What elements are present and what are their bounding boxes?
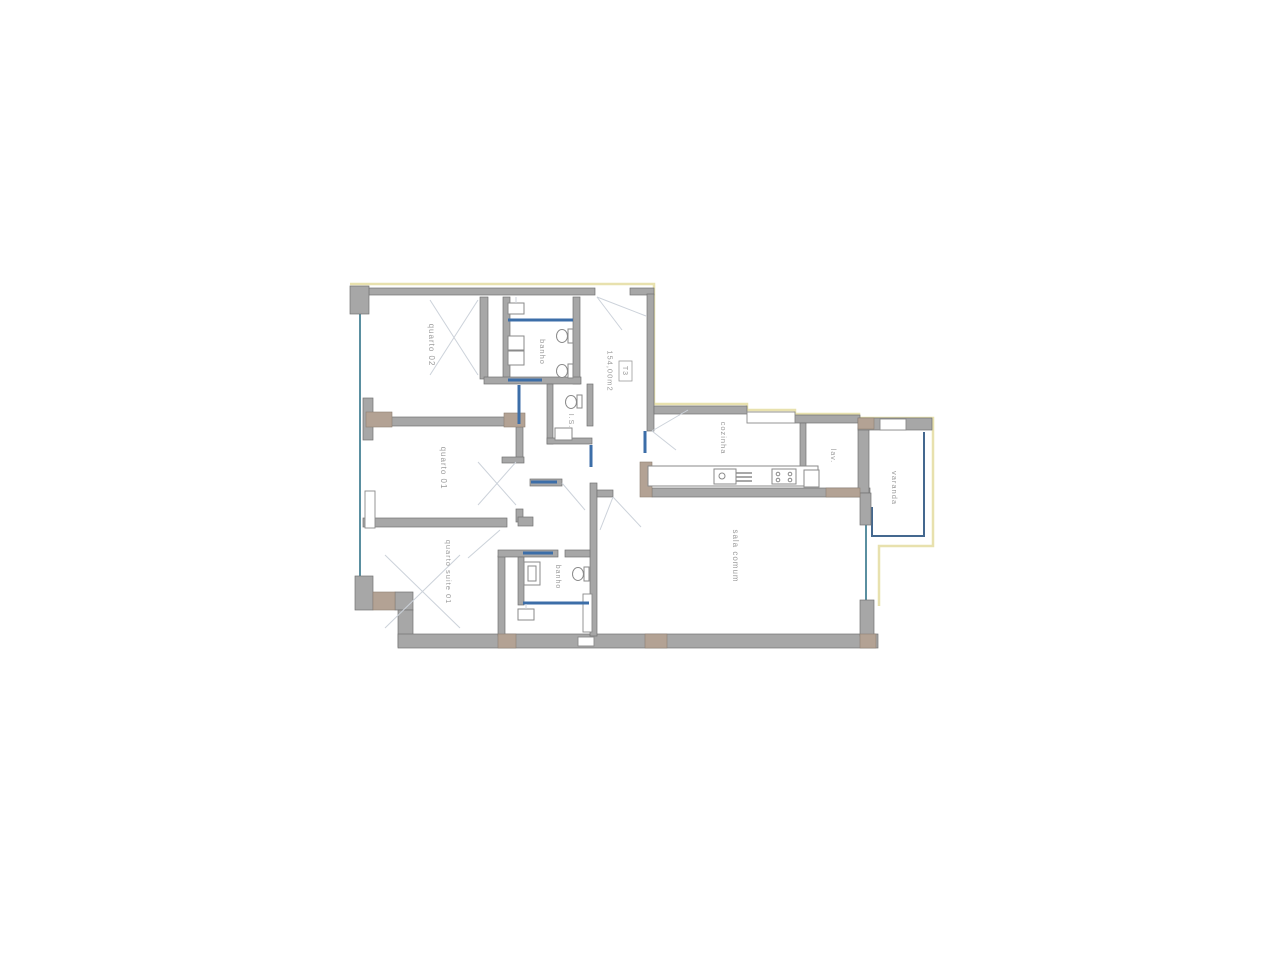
room-label-quarto-suite-01: quarto suite 01 xyxy=(444,540,453,605)
area-label: 154,00m2 xyxy=(606,350,615,391)
cabinet-icon xyxy=(508,351,524,365)
bathroom-bottom-fixtures xyxy=(518,562,589,620)
wall-bottom xyxy=(398,634,878,648)
washer-icon xyxy=(804,470,819,487)
cabinet-icon xyxy=(508,336,524,350)
sink-icon xyxy=(508,303,524,314)
stove-icon xyxy=(772,469,796,484)
sink-icon xyxy=(518,609,534,620)
window-kitchen xyxy=(747,412,795,423)
exterior-boundary-line xyxy=(350,284,933,606)
room-label-varanda: varanda xyxy=(890,471,899,505)
vent-bottom-wall xyxy=(578,637,594,646)
room-label-quarto-01: quarto 01 xyxy=(439,447,448,490)
unit-label: T3 xyxy=(621,366,628,376)
room-label-quarto-02: quarto 02 xyxy=(427,324,436,367)
window-left-sash xyxy=(365,491,375,528)
toilet-icon xyxy=(557,330,568,343)
toilet-icon xyxy=(573,568,584,581)
room-label-cozinha: cozinha xyxy=(719,422,728,455)
sink-icon xyxy=(555,428,572,440)
column-sala-right xyxy=(860,600,874,636)
floor-plan-drawing: quarto 02 banho I.S. T3 154,00m2 cozinha… xyxy=(0,0,1280,960)
kitchen-fixtures xyxy=(648,466,819,487)
column-top-left xyxy=(350,286,369,314)
floor-plan-page: quarto 02 banho I.S. T3 154,00m2 cozinha… xyxy=(0,0,1280,960)
toilet-icon xyxy=(566,396,577,409)
room-label-is: I.S. xyxy=(567,414,574,429)
room-label-banho-bottom: banho xyxy=(554,565,561,589)
room-label-lav: lav. xyxy=(829,449,836,463)
room-label-banho-top: banho xyxy=(538,339,547,365)
window-varanda xyxy=(880,419,906,430)
bidet-icon xyxy=(557,365,568,378)
door-leaf xyxy=(583,594,592,632)
bathroom-top-fixtures xyxy=(508,297,573,378)
room-label-sala-comum: sala comum xyxy=(731,529,740,582)
